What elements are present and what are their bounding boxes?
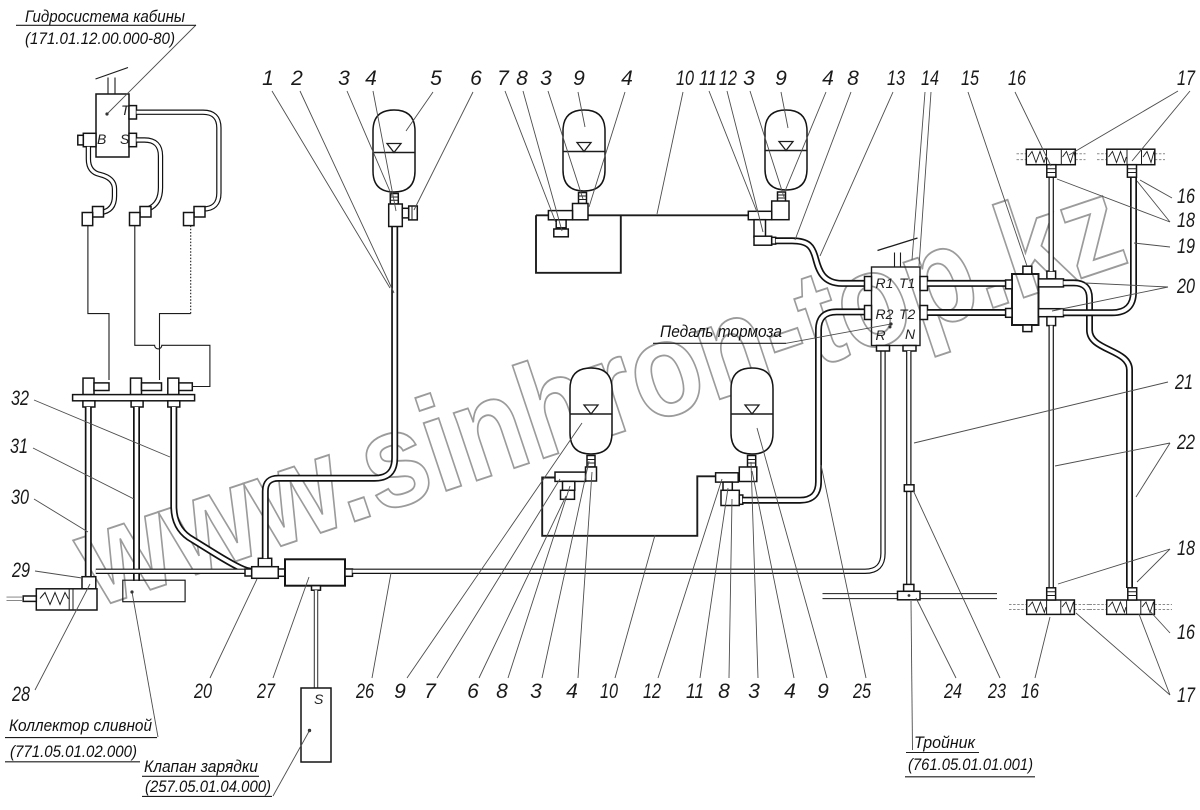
svg-text:12: 12 — [719, 67, 737, 90]
svg-text:27: 27 — [256, 680, 276, 703]
svg-text:(761.05.01.01.001): (761.05.01.01.001) — [908, 755, 1033, 774]
svg-text:19: 19 — [1177, 235, 1195, 258]
svg-text:9: 9 — [775, 67, 787, 90]
svg-text:Гидросистема кабины: Гидросистема кабины — [25, 7, 185, 26]
svg-text:N: N — [905, 326, 916, 342]
svg-text:20: 20 — [193, 680, 212, 703]
svg-text:T2: T2 — [899, 306, 916, 322]
svg-text:24: 24 — [943, 680, 962, 703]
svg-text:3: 3 — [540, 67, 552, 90]
svg-text:15: 15 — [961, 67, 979, 90]
svg-text:8: 8 — [496, 680, 508, 703]
svg-text:10: 10 — [676, 67, 694, 90]
svg-text:9: 9 — [817, 680, 829, 703]
svg-text:Тройник: Тройник — [914, 733, 976, 752]
svg-text:8: 8 — [847, 67, 859, 90]
svg-text:(171.01.12.00.000-80): (171.01.12.00.000-80) — [25, 29, 175, 48]
svg-text:14: 14 — [921, 67, 939, 90]
svg-text:25: 25 — [852, 680, 871, 703]
svg-text:3: 3 — [338, 67, 350, 90]
svg-text:18: 18 — [1177, 209, 1195, 232]
svg-text:R: R — [876, 327, 886, 343]
svg-text:S: S — [314, 691, 324, 707]
svg-text:30: 30 — [11, 486, 29, 509]
svg-text:20: 20 — [1176, 275, 1195, 298]
svg-text:7: 7 — [424, 680, 437, 703]
svg-text:B: B — [97, 131, 106, 147]
svg-text:T1: T1 — [899, 275, 915, 291]
svg-text:4: 4 — [822, 67, 834, 90]
svg-text:4: 4 — [566, 680, 578, 703]
svg-text:16: 16 — [1008, 67, 1026, 90]
svg-text:11: 11 — [686, 680, 704, 703]
svg-text:22: 22 — [1176, 431, 1195, 454]
svg-text:5: 5 — [430, 67, 442, 90]
svg-text:(771.05.01.02.000): (771.05.01.02.000) — [10, 742, 137, 761]
svg-text:4: 4 — [365, 67, 377, 90]
svg-text:T: T — [121, 102, 131, 118]
svg-text:17: 17 — [1177, 684, 1196, 707]
svg-text:Коллектор сливной: Коллектор сливной — [9, 716, 152, 735]
svg-text:28: 28 — [11, 683, 30, 706]
svg-text:18: 18 — [1177, 537, 1195, 560]
svg-text:8: 8 — [516, 67, 528, 90]
svg-text:32: 32 — [11, 387, 29, 410]
svg-text:9: 9 — [573, 67, 585, 90]
svg-text:4: 4 — [621, 67, 633, 90]
svg-text:R2: R2 — [876, 306, 894, 322]
svg-text:(257.05.01.04.000): (257.05.01.04.000) — [145, 777, 271, 796]
svg-text:10: 10 — [600, 680, 618, 703]
svg-text:6: 6 — [470, 67, 482, 90]
svg-text:13: 13 — [887, 67, 905, 90]
svg-text:12: 12 — [643, 680, 661, 703]
svg-text:R1: R1 — [876, 275, 894, 291]
svg-text:11: 11 — [699, 67, 717, 90]
svg-text:8: 8 — [718, 680, 730, 703]
svg-text:29: 29 — [11, 559, 30, 582]
svg-text:6: 6 — [467, 680, 479, 703]
svg-text:Клапан зарядки: Клапан зарядки — [144, 757, 258, 776]
svg-text:1: 1 — [262, 67, 274, 90]
svg-text:7: 7 — [497, 67, 510, 90]
svg-text:4: 4 — [784, 680, 796, 703]
svg-text:17: 17 — [1177, 67, 1196, 90]
svg-text:23: 23 — [987, 680, 1006, 703]
svg-text:2: 2 — [290, 67, 303, 90]
svg-text:9: 9 — [394, 680, 406, 703]
svg-text:16: 16 — [1021, 680, 1039, 703]
svg-text:31: 31 — [10, 435, 28, 458]
svg-text:S: S — [120, 131, 130, 147]
svg-text:21: 21 — [1174, 371, 1193, 394]
svg-text:Педаль тормоза: Педаль тормоза — [660, 322, 782, 341]
svg-text:3: 3 — [530, 680, 542, 703]
svg-text:16: 16 — [1177, 185, 1195, 208]
svg-text:3: 3 — [748, 680, 760, 703]
svg-text:3: 3 — [743, 67, 755, 90]
svg-text:26: 26 — [355, 680, 374, 703]
svg-text:16: 16 — [1177, 621, 1195, 644]
